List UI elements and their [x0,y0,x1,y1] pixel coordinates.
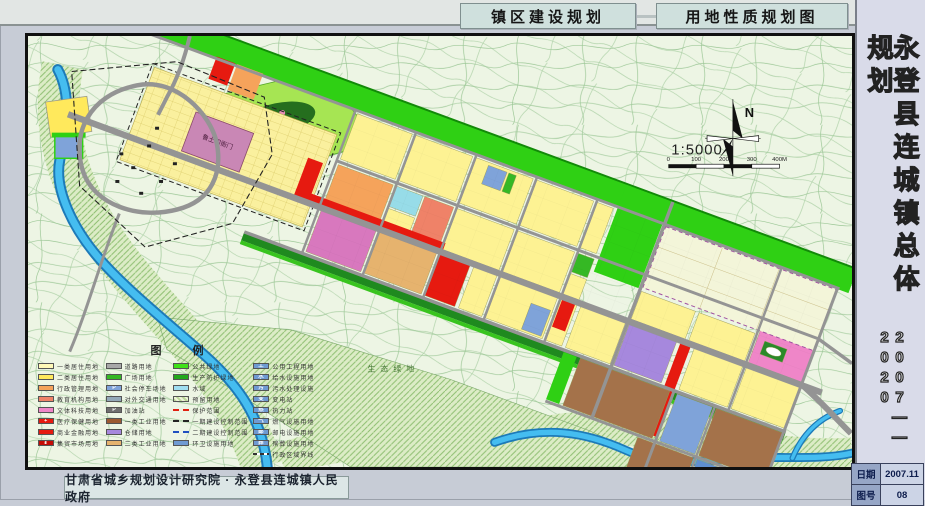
legend-item: 教育机构用地 [38,395,101,403]
scale-tick-label: 400M [772,157,787,163]
legend-swatch [173,385,189,391]
legend-item: 一期建设控制范围 [173,417,248,425]
legend-item-label: 社会停车场地 [125,384,167,393]
legend-item: 邮邮电设施用地 [253,428,316,436]
legend-item-label: 殡葬设施用地 [272,439,314,448]
legend-title: 图 例 [38,342,316,358]
legend-swatch [106,440,122,446]
legend-item: 一类居住用地 [38,362,101,370]
legend-item: 商业金融用地 [38,428,101,436]
legend-item-label: 集贸市场用地 [57,439,99,448]
legend-swatch-glyph: P [112,407,116,412]
legend-item-label: 生产防护绿地 [192,373,234,382]
title-block-left: 镇区建设规划 [460,3,636,29]
legend-item: P加油站 [106,406,169,414]
sheet-number-value: 08 [881,485,924,506]
legend-item-label: 燃气设施用地 [272,417,314,426]
legend-swatch: P [106,407,122,413]
legend-swatch [173,420,189,422]
legend-swatch-glyph: 水 [259,374,264,379]
legend-swatch: ¥ [38,440,54,446]
legend-item: 水域 [173,384,248,392]
legend-swatch [106,363,122,369]
legend-item-label: 变电站 [272,395,293,404]
legend-item: 气燃气设施用地 [253,417,316,425]
legend-item-label: 商业金融用地 [57,428,99,437]
legend-swatch: + [38,418,54,424]
legend-item: 行政管理用地 [38,384,101,392]
title-block-right: 用地性质规划图 [656,3,848,29]
legend-item: 保护范围 [173,406,248,414]
legend-item-label: 对外交通用地 [125,395,167,404]
legend-item: 工公用工程用地 [253,362,316,370]
legend-item-label: 预留用地 [192,395,220,404]
legend-swatch [173,396,189,402]
sheet-title-vertical: 永登县连城镇总体规划 [866,34,918,317]
legend-item-label: 医疗保健用地 [57,417,99,426]
legend-swatch: 邮 [253,429,269,435]
legend-item-label: 污水处理设施 [272,384,314,393]
tab-connector [634,15,656,18]
legend-swatch-glyph: 气 [259,418,264,423]
legend-item-label: 道路用地 [125,362,153,371]
legend-swatch [173,374,189,380]
legend-swatch: 变 [253,396,269,402]
legend-item: 行政区域界线 [253,450,316,458]
legend-item: 变变电站 [253,395,316,403]
legend-item-label: 水域 [192,384,206,393]
legend-swatch-glyph: 葬 [259,440,264,445]
table-row: 日期 2007.11 [852,464,924,485]
legend-item-label: 一类工业用地 [125,417,167,426]
legend-column: 工公用工程用地水给水设施用地污污水处理设施变变电站热热力站气燃气设施用地邮邮电设… [253,362,316,458]
legend-swatch [38,407,54,413]
legend-item: 葬殡葬设施用地 [253,439,316,447]
legend-swatch [106,374,122,380]
legend-item-label: 二类居住用地 [57,373,99,382]
legend-swatch: 污 [253,385,269,391]
legend-swatch [173,363,189,369]
plan-category-label: 镇区建设规划 [491,6,605,27]
legend-swatch [38,396,54,402]
legend-item-label: 一类居住用地 [57,362,99,371]
date-value: 2007.11 [881,464,924,485]
drawing-name-label: 用地性质规划图 [685,6,818,27]
legend-swatch-glyph: 邮 [259,429,264,434]
legend-item-label: 一期建设控制范围 [192,417,248,426]
legend-item: 一类工业用地 [106,417,169,425]
eco-green-label: 生态绿地 [368,363,420,373]
legend-item: 生产防护绿地 [173,373,248,381]
legend-swatch-glyph: 热 [259,407,264,412]
legend-swatch [38,374,54,380]
legend-item-label: 给水设施用地 [272,373,314,382]
legend-item-label: 二期建设控制范围 [192,428,248,437]
date-label: 日期 [852,464,881,485]
legend-item: P社会停车场地 [106,384,169,392]
legend-item-label: 公共绿地 [192,362,220,371]
legend-swatch [173,431,189,433]
legend-swatch [106,429,122,435]
legend-swatch [106,418,122,424]
legend-column: 一类居住用地二类居住用地行政管理用地教育机构用地文体科技用地+医疗保健用地商业金… [38,362,101,458]
legend: 图 例 一类居住用地二类居住用地行政管理用地教育机构用地文体科技用地+医疗保健用… [38,342,316,458]
legend-item: ¥集贸市场用地 [38,439,101,447]
legend-swatch [173,409,189,411]
legend-swatch-glyph: + [44,418,47,423]
legend-item-label: 热力站 [272,406,293,415]
scale-tick-label: 200 [719,157,730,163]
legend-item: 对外交通用地 [106,395,169,403]
north-label: N [745,105,754,120]
legend-item-label: 仓储用地 [125,428,153,437]
scale-tick-label: 100 [691,157,702,163]
title-sidebar: 永登县连城镇总体规划 2007——2020 [855,0,925,500]
legend-item-label: 保护范围 [192,406,220,415]
legend-item-label: 公用工程用地 [272,362,314,371]
legend-item-label: 广场用地 [125,373,153,382]
legend-swatch: 工 [253,363,269,369]
legend-columns: 一类居住用地二类居住用地行政管理用地教育机构用地文体科技用地+医疗保健用地商业金… [38,362,316,458]
sheet-number-label: 图号 [852,485,881,506]
legend-swatch [106,396,122,402]
legend-swatch-glyph: 变 [259,396,264,401]
legend-swatch [38,363,54,369]
legend-item: 污污水处理设施 [253,384,316,392]
legend-swatch-glyph: ¥ [44,440,47,445]
legend-item: 文体科技用地 [38,406,101,414]
legend-swatch-glyph: P [112,385,116,390]
legend-swatch: P [106,385,122,391]
legend-item: 二期建设控制范围 [173,428,248,436]
legend-swatch: 气 [253,418,269,424]
legend-item: 二类工业用地 [106,439,169,447]
legend-item: 广场用地 [106,373,169,381]
plan-sheet: { "page": { "title_left": "镇区建设规划", "tit… [0,0,925,500]
legend-item: 水给水设施用地 [253,373,316,381]
legend-swatch: 热 [253,407,269,413]
legend-item-label: 加油站 [125,406,146,415]
legend-item: 二类居住用地 [38,373,101,381]
scale-tick-label: 300 [747,157,758,163]
legend-item: 预留用地 [173,395,248,403]
legend-item-label: 教育机构用地 [57,395,99,404]
legend-column: 道路用地广场用地P社会停车场地对外交通用地P加油站一类工业用地仓储用地二类工业用… [106,362,169,458]
legend-swatch: 葬 [253,440,269,446]
legend-column: 公共绿地生产防护绿地水域预留用地保护范围一期建设控制范围二期建设控制范围环卫设施… [173,362,248,458]
legend-swatch [38,429,54,435]
scale-ratio-label: 1:5000 [671,142,722,158]
legend-item-label: 邮电设施用地 [272,428,314,437]
legend-item: +医疗保健用地 [38,417,101,425]
map-area: 鲁土司衙门 [25,33,855,470]
legend-item-label: 行政管理用地 [57,384,99,393]
legend-swatch-glyph: 污 [259,385,264,390]
legend-item-label: 环卫设施用地 [192,439,234,448]
legend-item: 热热力站 [253,406,316,414]
credit-box: 甘肃省城乡规划设计研究院 · 永登县连城镇人民政府 [64,476,349,499]
legend-swatch: 水 [253,374,269,380]
table-row: 图号 08 [852,485,924,506]
legend-item-label: 文体科技用地 [57,406,99,415]
legend-item-label: 行政区域界线 [272,450,314,459]
legend-swatch-glyph: 工 [259,363,264,368]
legend-item: 仓储用地 [106,428,169,436]
legend-swatch [173,440,189,446]
legend-item-label: 二类工业用地 [125,439,167,448]
legend-item: 环卫设施用地 [173,439,248,447]
legend-swatch [38,385,54,391]
legend-item: 道路用地 [106,362,169,370]
legend-swatch [253,453,269,455]
credit-text: 甘肃省城乡规划设计研究院 · 永登县连城镇人民政府 [65,471,348,505]
legend-item: 公共绿地 [173,362,248,370]
